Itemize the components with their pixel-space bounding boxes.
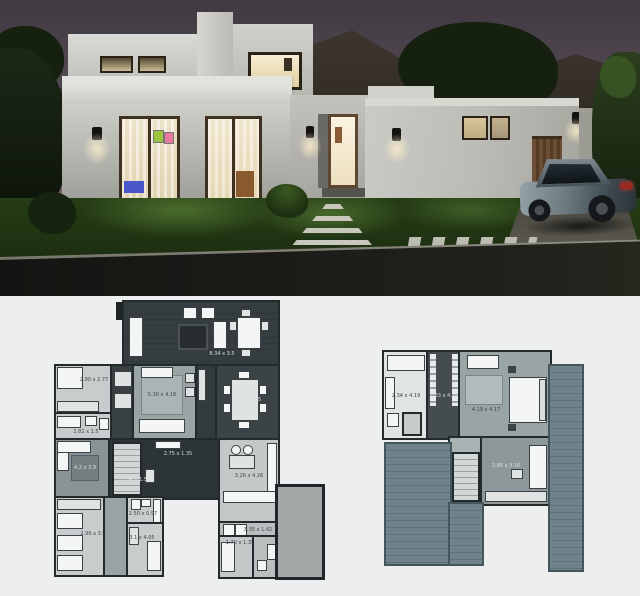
twin-bed-1 — [58, 514, 82, 528]
ground-floor-plan: 8.34 x 3.5 2.90 x 2.77 2.82 x 1.5 — [56, 302, 322, 588]
nightstand-2 — [508, 424, 516, 431]
living-console — [142, 368, 172, 377]
bathroom-2-dim-label: 2.50 x 0.97 — [129, 511, 157, 517]
door-art — [335, 127, 342, 143]
front-bush-left — [28, 192, 76, 234]
kitchen-counter-right — [268, 444, 276, 492]
dining-chair-1 — [224, 386, 230, 394]
laundry-dim-label: 3.35 x 1.42 — [244, 527, 272, 533]
dining-dim-label: 5.17 x 4.15 — [233, 397, 261, 403]
bedroom-2-dim-label: 2.96 x 3.9 — [80, 531, 105, 537]
master-sofa — [468, 356, 498, 368]
sitting-dim-label: 3.86 x 3.16 — [492, 463, 520, 469]
closet-dim-label: 2.33 x 4.19 — [430, 393, 458, 399]
terrace-dining-chair-3 — [242, 310, 250, 316]
dining-chair-3 — [260, 386, 266, 394]
wardrobe-2 — [58, 500, 100, 509]
terrace-side-table — [214, 322, 226, 348]
front-bush-center — [266, 184, 308, 218]
dining-chair-2 — [224, 404, 230, 412]
toilet-2 — [132, 500, 140, 509]
lamp-glow-2 — [384, 134, 410, 164]
parked-car — [519, 152, 640, 242]
fireplace — [156, 442, 180, 448]
sink-1 — [86, 417, 96, 425]
sitting-sofa — [530, 446, 546, 488]
entry-dim-label: 1.54 x 1.56 — [122, 477, 150, 483]
right-wing-parapet — [365, 98, 579, 106]
side-table-a — [186, 374, 194, 382]
front-door — [328, 114, 358, 188]
kids-art-green — [154, 131, 163, 142]
floor-plans-section: 8.34 x 3.5 2.90 x 2.77 2.82 x 1.5 — [0, 296, 640, 596]
side-table-b — [186, 388, 194, 396]
sitting-table — [512, 470, 522, 478]
bedroom-1-dim-label: 2.90 x 2.77 — [80, 377, 108, 383]
upper-toilet — [388, 414, 398, 426]
kitchen-counter-bottom — [224, 492, 276, 502]
living-sofa — [140, 420, 184, 432]
room-sitting — [482, 438, 550, 504]
kitchen-stool-2 — [244, 446, 252, 454]
dining-chair-6 — [239, 422, 249, 428]
room-bedroom-3 — [128, 524, 162, 575]
garage — [278, 487, 322, 577]
service-shower — [268, 545, 276, 559]
garage-wing-window-1 — [462, 116, 488, 140]
terrace-dim-label: 8.34 x 3.5 — [209, 351, 234, 357]
closet-box-1 — [115, 372, 131, 386]
master-pillows — [540, 380, 545, 420]
entry-lamp-glow — [298, 132, 322, 160]
terrace-chair-1 — [184, 308, 196, 318]
terrace-dining-table — [238, 318, 260, 348]
room-living — [134, 366, 197, 440]
passage-strip — [197, 366, 217, 440]
dining-chair-4 — [260, 404, 266, 412]
living-dim-label: 5.30 x 4.18 — [148, 392, 176, 398]
washer — [224, 525, 234, 535]
upper-left-volume — [68, 34, 200, 80]
stairs-ground — [114, 444, 140, 494]
terrace-lounge — [130, 318, 142, 356]
kitchen-dim-label: 3.26 x 4.26 — [235, 473, 263, 479]
roof-deck-right — [550, 366, 582, 570]
sideboard — [199, 370, 205, 400]
terrace-rug — [180, 326, 206, 348]
wood-desk — [236, 171, 254, 197]
twin-bed-2 — [58, 536, 82, 550]
service-wc — [258, 561, 266, 570]
closet-strip — [112, 366, 134, 440]
leaf-highlight — [600, 56, 636, 98]
room-master-bedroom — [460, 352, 550, 438]
room-service-bath — [254, 537, 278, 577]
wardrobe-1 — [58, 402, 98, 411]
sliding-door-2 — [205, 116, 262, 202]
kids-art-pink — [165, 133, 173, 143]
sliding-door-1 — [119, 116, 180, 202]
roof-deck-left — [386, 444, 450, 564]
sitting-shelf — [486, 492, 546, 501]
lamp-glow-1 — [83, 133, 111, 165]
terrace-dining-chair-4 — [242, 350, 250, 356]
blue-bed — [124, 181, 144, 193]
master-dim-label: 4.19 x 4.17 — [472, 407, 500, 413]
upper-floor-plan: 2.34 x 4.19 2.33 x 4.19 4.19 x 4.17 — [384, 352, 584, 574]
family-dim-label: 4.2 x 3.9 — [74, 465, 96, 471]
service-dim-label: 1.70 x 1.35 — [226, 540, 254, 546]
closet-box-2 — [115, 394, 131, 408]
entry-step — [322, 188, 366, 197]
clerestory-window-1 — [100, 56, 133, 73]
family-sofa-horiz — [58, 442, 90, 452]
service-bed — [222, 543, 234, 571]
house-render — [0, 0, 640, 296]
room-kitchen — [220, 440, 278, 523]
picture-frame-in-window — [284, 58, 292, 71]
corridor — [105, 498, 128, 575]
room-bedroom-1 — [56, 366, 112, 414]
kitchen-table — [230, 456, 254, 468]
bed-3 — [148, 542, 160, 570]
terrace-dining-chair-1 — [230, 322, 236, 330]
bathtub-1 — [58, 417, 80, 427]
upper-shower — [404, 414, 420, 434]
door-mullion-1 — [148, 119, 151, 199]
kitchen-stool-1 — [232, 446, 240, 454]
upper-stair-block — [450, 438, 482, 504]
bedroom-3-dim-label: 3.1 x 4.05 — [129, 535, 154, 541]
garage-wing-window-2 — [490, 116, 510, 140]
twin-bed-3 — [58, 556, 82, 570]
car-taillight — [621, 182, 633, 189]
dining-chair-5 — [239, 372, 249, 378]
room-hall — [110, 440, 220, 498]
sink-2 — [142, 500, 150, 506]
clerestory-window-2 — [138, 56, 166, 73]
page: 8.34 x 3.5 2.90 x 2.77 2.82 x 1.5 — [0, 0, 640, 596]
hall-dim-label: 2.75 x 1.35 — [164, 451, 192, 457]
bed-1 — [58, 368, 82, 388]
nightstand-1 — [508, 366, 516, 373]
stairs-upper — [454, 454, 478, 500]
master-rug — [466, 376, 502, 404]
toilet-1 — [100, 419, 108, 429]
room-bathroom-1 — [56, 414, 112, 440]
upper-bathroom-dim-label: 2.34 x 4.19 — [392, 393, 420, 399]
roof-deck-left-lower — [450, 504, 482, 564]
terrace-chair-2 — [202, 308, 214, 318]
upper-bathtub — [388, 356, 424, 370]
bathroom-1-dim-label: 2.82 x 1.5 — [73, 429, 98, 435]
door-mullion-2 — [232, 119, 235, 199]
terrace-dining-chair-2 — [262, 322, 268, 330]
room-terrace — [124, 302, 278, 368]
